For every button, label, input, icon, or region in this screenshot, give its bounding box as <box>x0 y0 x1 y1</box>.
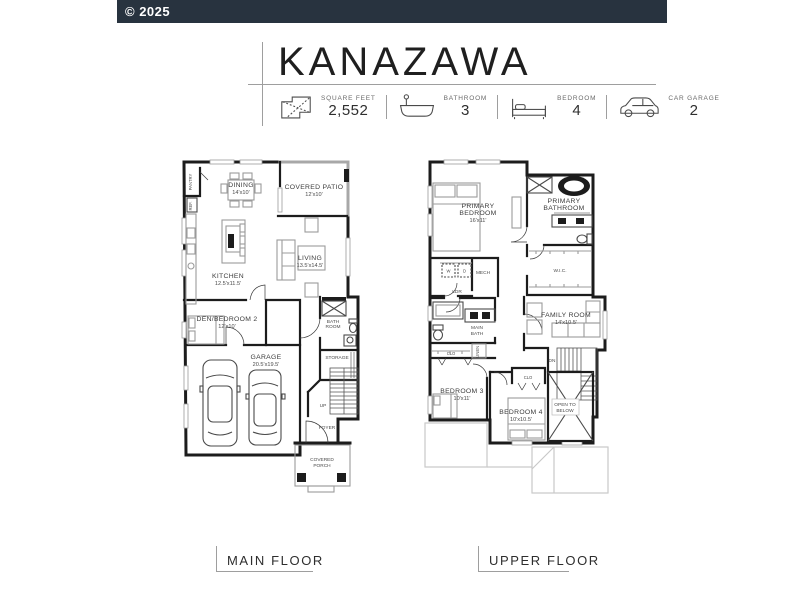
stats-row: SQUARE FEET 2,552 BATHROOM 3 <box>268 90 730 124</box>
stat-value: 2 <box>690 102 699 119</box>
room-label-closet-bed4: CLO <box>524 375 533 380</box>
room-label-porch-2: PORCH <box>313 463 331 469</box>
room-label-kitchen: KITCHEN <box>212 273 244 280</box>
room-dims-bedroom3: 10'x11' <box>454 396 471 402</box>
copyright-text: © 2025 <box>117 4 170 19</box>
garage-car <box>200 360 240 446</box>
room-dims-den: 12'x10' <box>218 324 235 330</box>
room-label-closet-bed3: CLO <box>447 351 456 356</box>
room-label-dining: DINING <box>228 182 254 189</box>
room-label-linen: LINEN <box>475 346 480 358</box>
stat-value: 4 <box>572 102 581 119</box>
bed-icon <box>508 94 550 121</box>
stat-car-garage: CAR GARAGE 2 <box>607 94 729 121</box>
main-floor-windows <box>182 160 350 428</box>
main-floor-caption-text: MAIN FLOOR <box>227 553 324 568</box>
family-room-furniture <box>527 301 600 337</box>
stat-label: BATHROOM <box>444 95 487 102</box>
room-label-porch-1: COVERED <box>310 457 334 463</box>
room-label-primary-bathroom-2: BATHROOM <box>543 205 584 212</box>
room-label-main-bath-1: MAIN <box>471 325 484 331</box>
room-dims-kitchen: 12.5'x11.5' <box>215 281 241 287</box>
room-dims-bedroom4: 10'x10.5' <box>510 417 532 423</box>
floor-plan-sheet: © 2025 KANAZAWA SQUARE FEET 2,552 <box>0 0 789 592</box>
upper-floor-caption-text: UPPER FLOOR <box>489 553 600 568</box>
appliance-label-washer: W <box>447 269 451 274</box>
staircase-down <box>557 348 597 400</box>
main-bath-fixtures <box>433 302 495 340</box>
room-dims-primary-bedroom: 16'x11' <box>470 218 487 224</box>
room-label-den: DEN/BEDROOM 2 <box>197 316 258 323</box>
room-label-pantry: PANTRY <box>188 173 193 190</box>
bathtub-icon <box>397 93 437 122</box>
room-label-mech: MECH <box>476 270 491 276</box>
room-label-family: FAMILY ROOM <box>541 312 591 319</box>
main-floor-plan: PANTRY REF. DINING 14'x10' COVERED PATIO… <box>170 156 394 504</box>
main-floor-caption: MAIN FLOOR <box>216 546 313 572</box>
copyright-bar: © 2025 <box>117 0 667 23</box>
page-title: KANAZAWA <box>262 40 672 84</box>
covered-porch <box>295 421 350 492</box>
room-label-garage: GARAGE <box>251 354 282 361</box>
garage-car <box>246 370 285 445</box>
door-arcs <box>226 285 320 345</box>
room-label-dn: DN <box>549 358 556 364</box>
room-label-bedroom4: BEDROOM 4 <box>499 409 543 416</box>
room-dims-patio: 12'x10' <box>305 192 322 198</box>
pantry-closet <box>200 172 208 180</box>
room-label-ref: REF. <box>188 201 193 210</box>
laundry-fixtures <box>440 263 472 277</box>
room-dims-garage: 20.5'x19.5' <box>253 362 280 368</box>
room-label-ldr: LDR <box>452 289 462 295</box>
room-label-bathroom-2: ROOM <box>326 324 341 330</box>
main-floor-walls <box>184 162 358 455</box>
room-label-patio: COVERED PATIO <box>285 184 344 191</box>
room-dims-dining: 14'x10' <box>232 190 249 196</box>
upper-floor-plan: PRIMARY BEDROOM 16'x11' PRIMARY BATHROOM… <box>424 156 624 520</box>
stat-bathroom: BATHROOM 3 <box>387 93 497 122</box>
stat-label: BEDROOM <box>557 95 596 102</box>
storage-shelves <box>351 352 354 378</box>
room-label-open-below-1: OPEN TO <box>554 402 576 408</box>
appliance-label-dryer: D <box>463 269 466 274</box>
title-underline <box>248 84 656 85</box>
room-label-wic: W.I.C. <box>553 268 566 274</box>
stat-label: SQUARE FEET <box>321 95 376 102</box>
kitchen-island <box>222 220 245 263</box>
room-label-storage: STORAGE <box>325 355 348 361</box>
room-dims-living: 13.5'x14.5' <box>297 263 324 269</box>
upper-floor-caption: UPPER FLOOR <box>478 546 569 572</box>
stat-label: CAR GARAGE <box>668 95 719 102</box>
room-label-living: LIVING <box>298 255 322 262</box>
room-label-foyer: FOYER <box>319 425 336 431</box>
room-label-main-bath-2: BATH <box>471 331 484 337</box>
room-dims-family: 14'x10.5' <box>555 320 577 326</box>
kitchen-counter <box>186 214 196 304</box>
room-label-bedroom3: BEDROOM 3 <box>440 388 484 395</box>
primary-bedroom-furniture <box>433 183 521 251</box>
stat-value: 3 <box>461 102 470 119</box>
stat-square-feet: SQUARE FEET 2,552 <box>268 93 386 122</box>
room-label-primary-bedroom-2: BEDROOM <box>459 210 496 217</box>
room-label-up: UP <box>320 403 327 409</box>
stat-bedroom: BEDROOM 4 <box>498 94 606 121</box>
upper-floor-roof-outline <box>425 423 608 493</box>
room-label-primary-bathroom-1: PRIMARY <box>548 198 581 205</box>
room-label-primary-bedroom-1: PRIMARY <box>462 203 495 210</box>
car-icon <box>617 94 661 121</box>
main-floor-labels: PANTRY REF. DINING 14'x10' COVERED PATIO… <box>188 173 349 469</box>
floorplan-icon <box>278 93 314 122</box>
room-label-open-below-2: BELOW <box>556 408 574 414</box>
stat-value: 2,552 <box>328 102 368 119</box>
